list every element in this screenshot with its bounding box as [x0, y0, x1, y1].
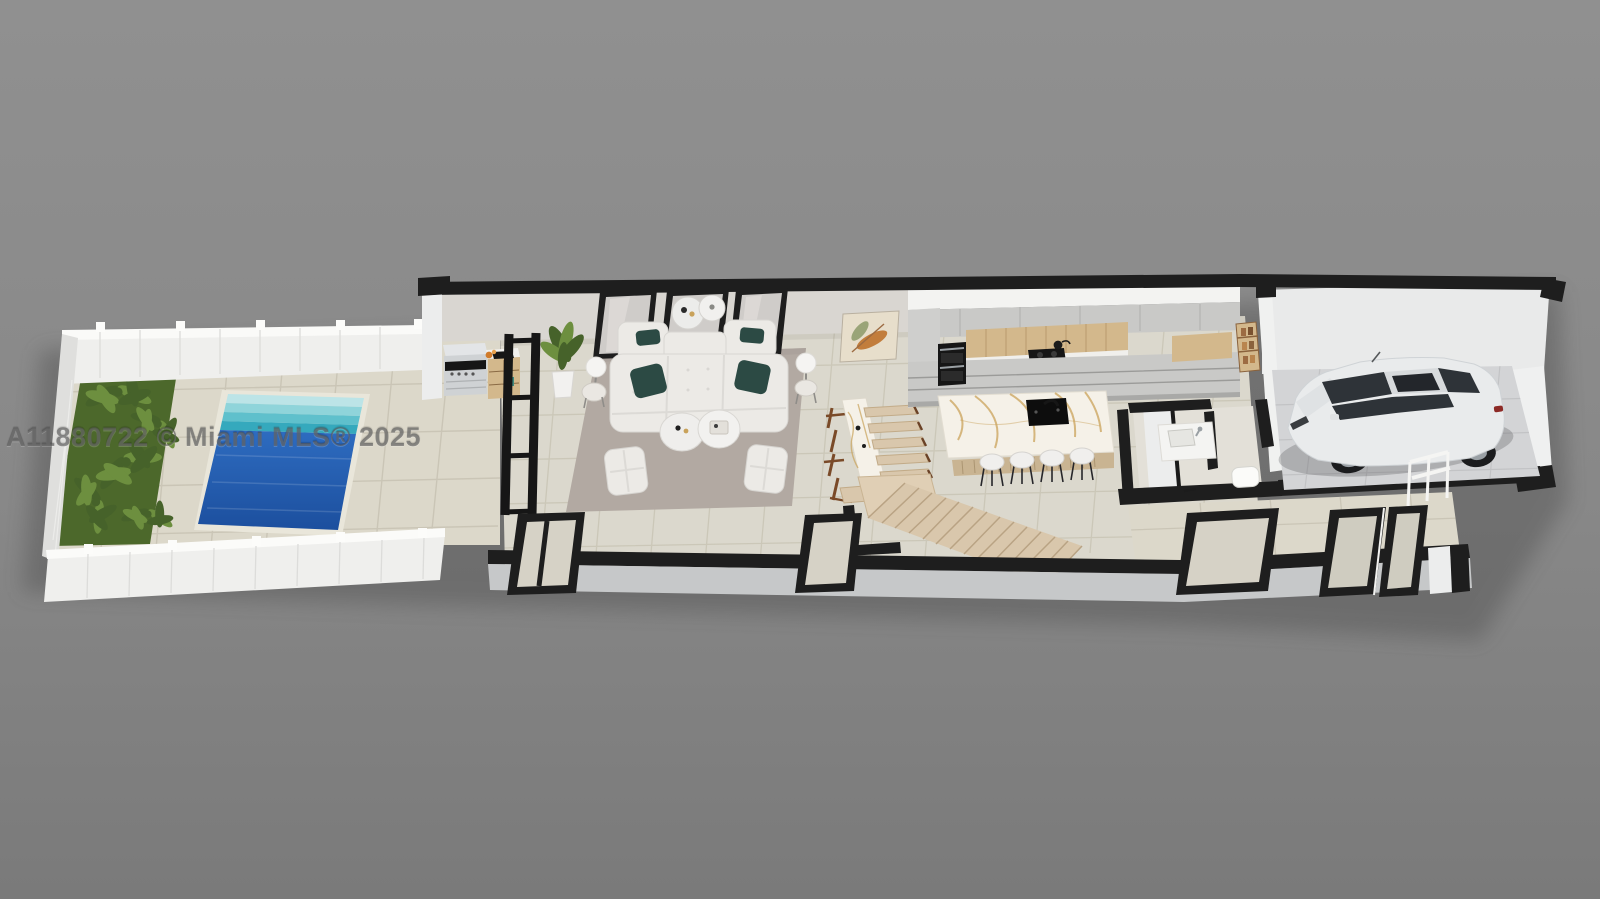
entry-door: [1319, 505, 1428, 597]
house-left-wall: [422, 294, 442, 400]
armchair: [743, 444, 788, 495]
sectional-sofa: [610, 320, 788, 432]
car-sunroof: [1392, 373, 1440, 392]
wall-art: [840, 311, 899, 362]
floor-plan-photo: A11880722 © Miami MLS® 2025: [0, 0, 1600, 899]
bathroom-vanity: [1158, 422, 1216, 461]
backsplash-niche-right: [1172, 332, 1232, 362]
pantry-shelves: [1236, 322, 1260, 372]
floor-plan-render: [0, 0, 1600, 899]
armchair: [603, 446, 648, 497]
toilet: [1231, 466, 1259, 488]
swimming-pool: [194, 390, 370, 536]
kettle: [1054, 341, 1063, 350]
window-frame: [507, 512, 585, 595]
double-wall-ovens: [938, 342, 966, 386]
window-frame: [795, 513, 862, 593]
car-mirror: [1330, 414, 1339, 420]
pool-water: [198, 430, 356, 530]
window-frame: [1176, 508, 1279, 595]
